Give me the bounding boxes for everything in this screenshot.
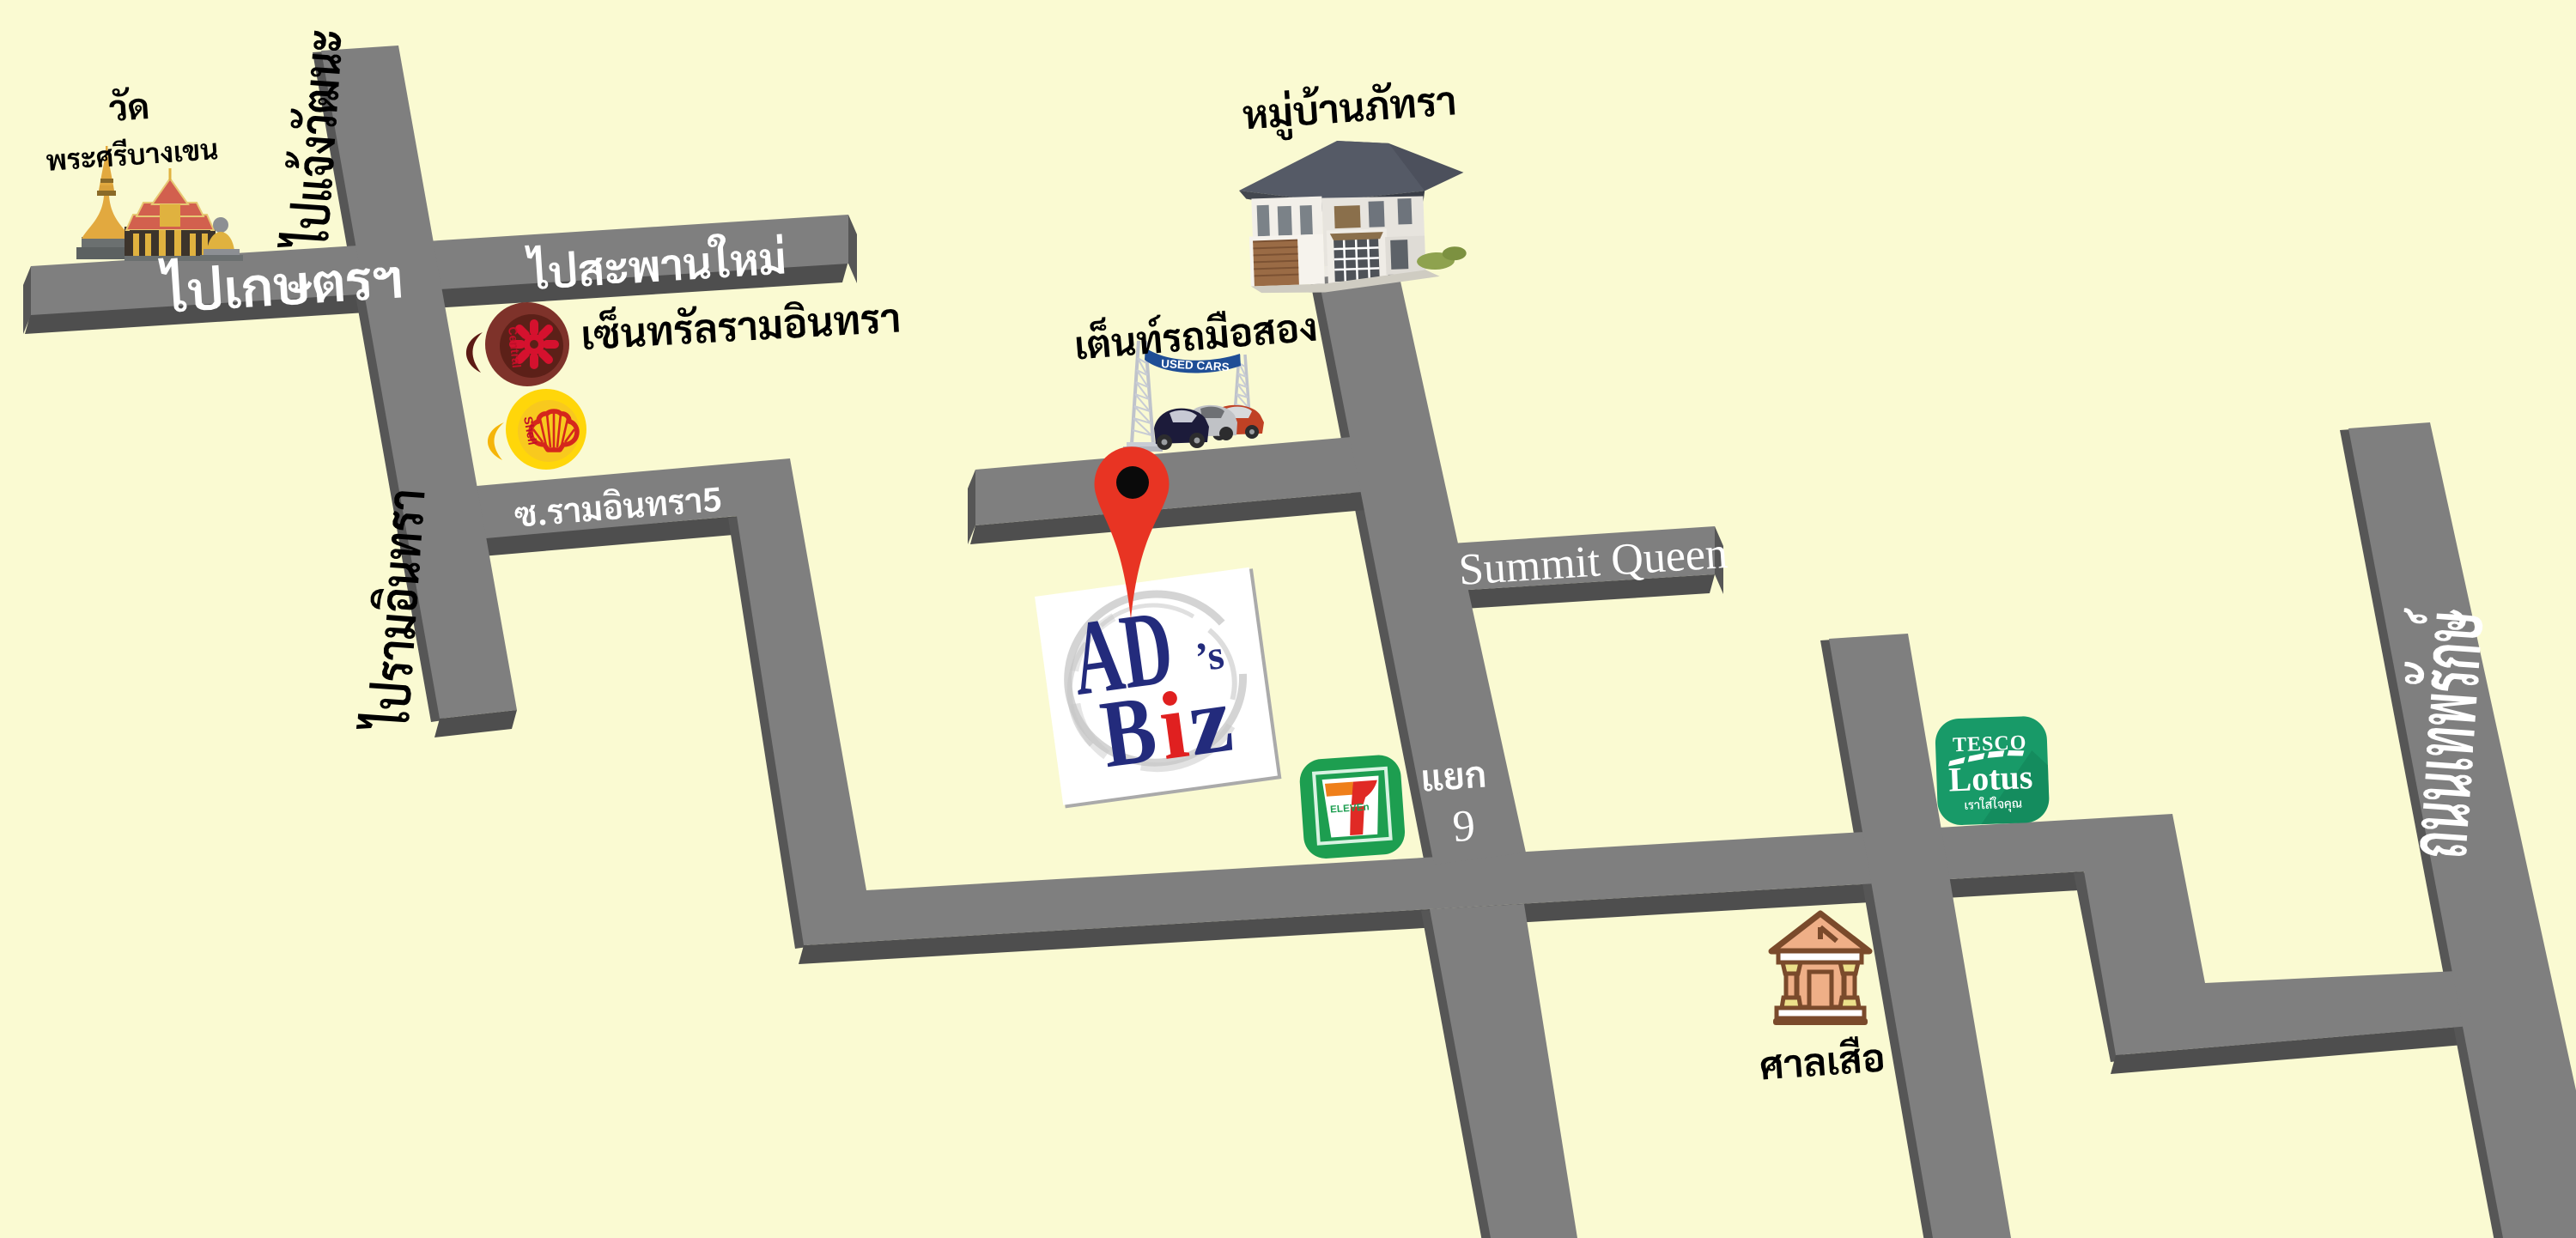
svg-text:Lotus: Lotus	[1948, 757, 2033, 798]
svg-text:9: 9	[1451, 801, 1477, 852]
